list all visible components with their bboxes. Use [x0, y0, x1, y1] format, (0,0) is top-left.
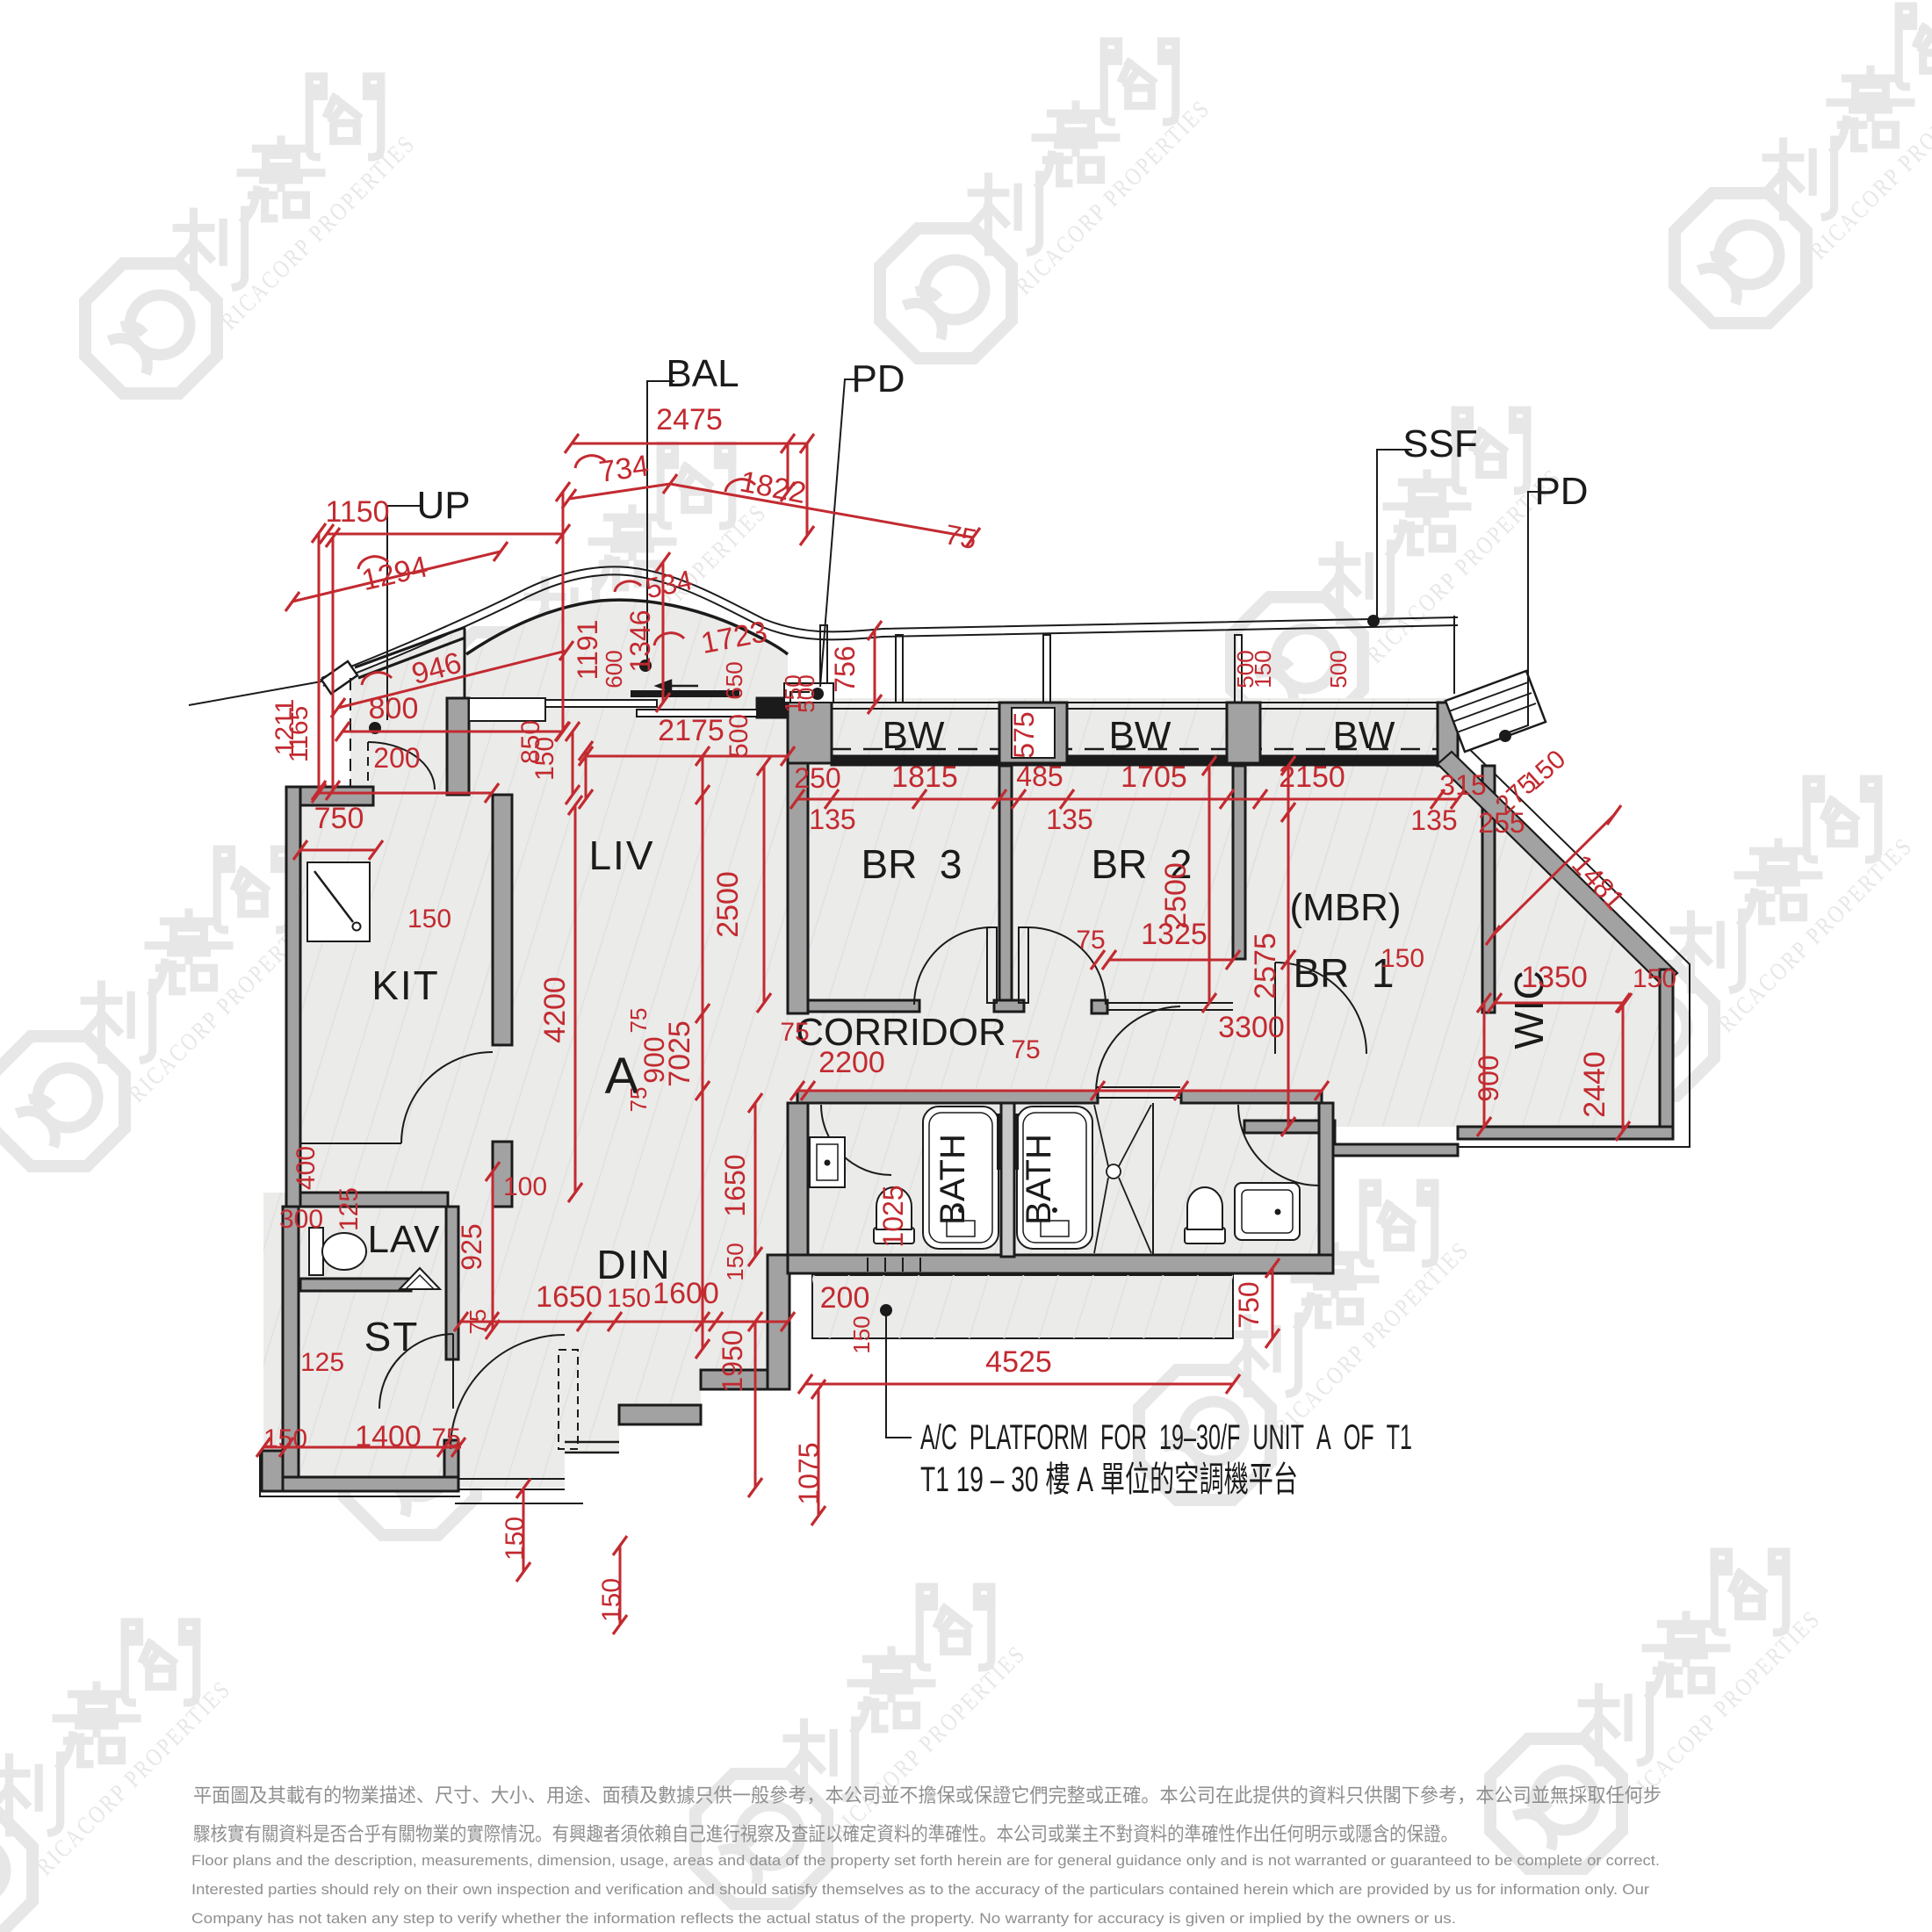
svg-text:BATH: BATH	[1020, 1134, 1058, 1225]
svg-text:150: 150	[1250, 650, 1276, 688]
svg-text:1025: 1025	[877, 1185, 909, 1247]
svg-text:1325: 1325	[1141, 918, 1207, 951]
svg-text:650: 650	[721, 661, 747, 699]
svg-text:BR 1: BR 1	[1293, 950, 1394, 996]
svg-text:135: 135	[809, 804, 855, 835]
svg-text:734: 734	[597, 449, 651, 489]
svg-text:4200: 4200	[538, 977, 572, 1043]
svg-text:1346: 1346	[624, 609, 656, 672]
svg-text:3300: 3300	[1218, 1011, 1285, 1044]
svg-text:BW: BW	[1109, 714, 1171, 757]
svg-text:UP: UP	[416, 484, 470, 527]
svg-text:2440: 2440	[1578, 1051, 1611, 1118]
svg-text:150: 150	[263, 1424, 307, 1453]
svg-text:LAV: LAV	[368, 1218, 441, 1261]
svg-text:100: 100	[503, 1172, 547, 1201]
svg-text:75: 75	[625, 1008, 652, 1034]
svg-text:1650: 1650	[719, 1154, 751, 1216]
svg-text:500: 500	[793, 674, 819, 712]
svg-text:135: 135	[1410, 804, 1457, 836]
svg-text:750: 750	[1233, 1281, 1265, 1328]
svg-text:1705: 1705	[1121, 761, 1187, 794]
svg-text:150: 150	[607, 1284, 651, 1313]
svg-text:1150: 1150	[325, 495, 389, 529]
svg-text:600: 600	[601, 650, 627, 688]
svg-text:200: 200	[373, 742, 420, 774]
svg-text:75: 75	[1011, 1035, 1040, 1064]
svg-text:485: 485	[1016, 761, 1063, 792]
svg-text:1165: 1165	[285, 706, 314, 763]
svg-text:135: 135	[1046, 804, 1092, 835]
svg-text:75: 75	[431, 1424, 460, 1453]
svg-text:BAL: BAL	[666, 352, 739, 395]
svg-text:1650: 1650	[536, 1280, 602, 1314]
svg-text:2200: 2200	[818, 1046, 885, 1079]
svg-text:2575: 2575	[1249, 933, 1282, 999]
svg-text:75: 75	[625, 1087, 652, 1113]
svg-text:1075: 1075	[793, 1442, 825, 1504]
svg-text:Interested parties should rely: Interested parties should rely on their …	[191, 1881, 1649, 1898]
svg-text:500: 500	[1325, 650, 1352, 688]
svg-text:800: 800	[369, 692, 419, 725]
svg-text:PD: PD	[851, 357, 905, 400]
svg-text:125: 125	[300, 1348, 344, 1377]
svg-text:A/C PLATFORM FOR 19–30/F U: A/C PLATFORM FOR 19–30/F UNIT A OF T1	[920, 1418, 1412, 1457]
svg-text:2500: 2500	[711, 871, 745, 938]
svg-text:150: 150	[530, 737, 559, 781]
svg-text:PD: PD	[1534, 470, 1588, 513]
svg-text:平面圖及其載有的物業描述、尺寸、大小、用途、面積及數據只供一: 平面圖及其載有的物業描述、尺寸、大小、用途、面積及數據只供一般參考，本公司並不擔…	[193, 1784, 1662, 1806]
svg-text:75: 75	[465, 1309, 491, 1335]
svg-text:BATH: BATH	[934, 1134, 972, 1225]
svg-text:1350: 1350	[1521, 961, 1588, 994]
svg-text:575: 575	[1008, 711, 1040, 758]
svg-text:75: 75	[780, 1018, 809, 1047]
svg-text:Company has not taken any step: Company has not taken any step to verify…	[191, 1910, 1456, 1927]
svg-text:1191: 1191	[572, 620, 603, 681]
svg-text:200: 200	[820, 1281, 870, 1315]
svg-text:1400: 1400	[355, 1420, 422, 1453]
svg-text:900: 900	[1473, 1055, 1504, 1101]
svg-text:ST: ST	[364, 1314, 420, 1359]
svg-text:1600: 1600	[652, 1277, 719, 1310]
svg-text:2175: 2175	[658, 714, 724, 747]
svg-text:BW: BW	[1333, 714, 1395, 757]
svg-text:KIT: KIT	[371, 962, 440, 1008]
svg-text:925: 925	[456, 1223, 487, 1270]
svg-text:驟核實有關資料是否合乎有關物業的實際情況。有興趣者須依賴自己: 驟核實有關資料是否合乎有關物業的實際情況。有興趣者須依賴自己進行視察及查証以確定…	[193, 1823, 1458, 1845]
svg-text:150: 150	[1381, 944, 1424, 973]
svg-text:750: 750	[314, 802, 364, 835]
svg-text:75: 75	[942, 518, 979, 555]
svg-text:756: 756	[829, 645, 861, 692]
svg-text:Floor plans and the descriptio: Floor plans and the description, measure…	[191, 1852, 1660, 1869]
svg-text:BR 3: BR 3	[861, 841, 962, 887]
svg-text:150: 150	[501, 1517, 530, 1561]
svg-text:(MBR): (MBR)	[1289, 886, 1401, 929]
svg-text:2150: 2150	[1279, 761, 1345, 794]
svg-text:LIV: LIV	[588, 833, 654, 878]
svg-text:4525: 4525	[985, 1345, 1052, 1379]
svg-text:900: 900	[638, 1036, 670, 1083]
svg-text:300: 300	[279, 1205, 323, 1234]
svg-text:SSF: SSF	[1402, 422, 1478, 465]
svg-text:2475: 2475	[656, 403, 723, 436]
svg-text:150: 150	[722, 1243, 748, 1280]
svg-text:75: 75	[1076, 926, 1105, 955]
svg-text:1950: 1950	[717, 1330, 748, 1392]
svg-text:500: 500	[724, 714, 753, 758]
svg-text:1815: 1815	[891, 761, 958, 794]
svg-text:T1 19 – 30 樓 A 單位的空調機平台: T1 19 – 30 樓 A 單位的空調機平台	[920, 1460, 1298, 1499]
svg-text:250: 250	[794, 762, 840, 794]
svg-text:BW: BW	[883, 714, 945, 757]
svg-text:315: 315	[1439, 769, 1486, 801]
svg-text:150: 150	[597, 1578, 626, 1622]
svg-text:150: 150	[407, 905, 451, 934]
svg-text:400: 400	[292, 1146, 321, 1190]
svg-text:125: 125	[335, 1187, 364, 1231]
svg-text:150: 150	[1633, 964, 1676, 993]
svg-text:150: 150	[848, 1316, 875, 1353]
